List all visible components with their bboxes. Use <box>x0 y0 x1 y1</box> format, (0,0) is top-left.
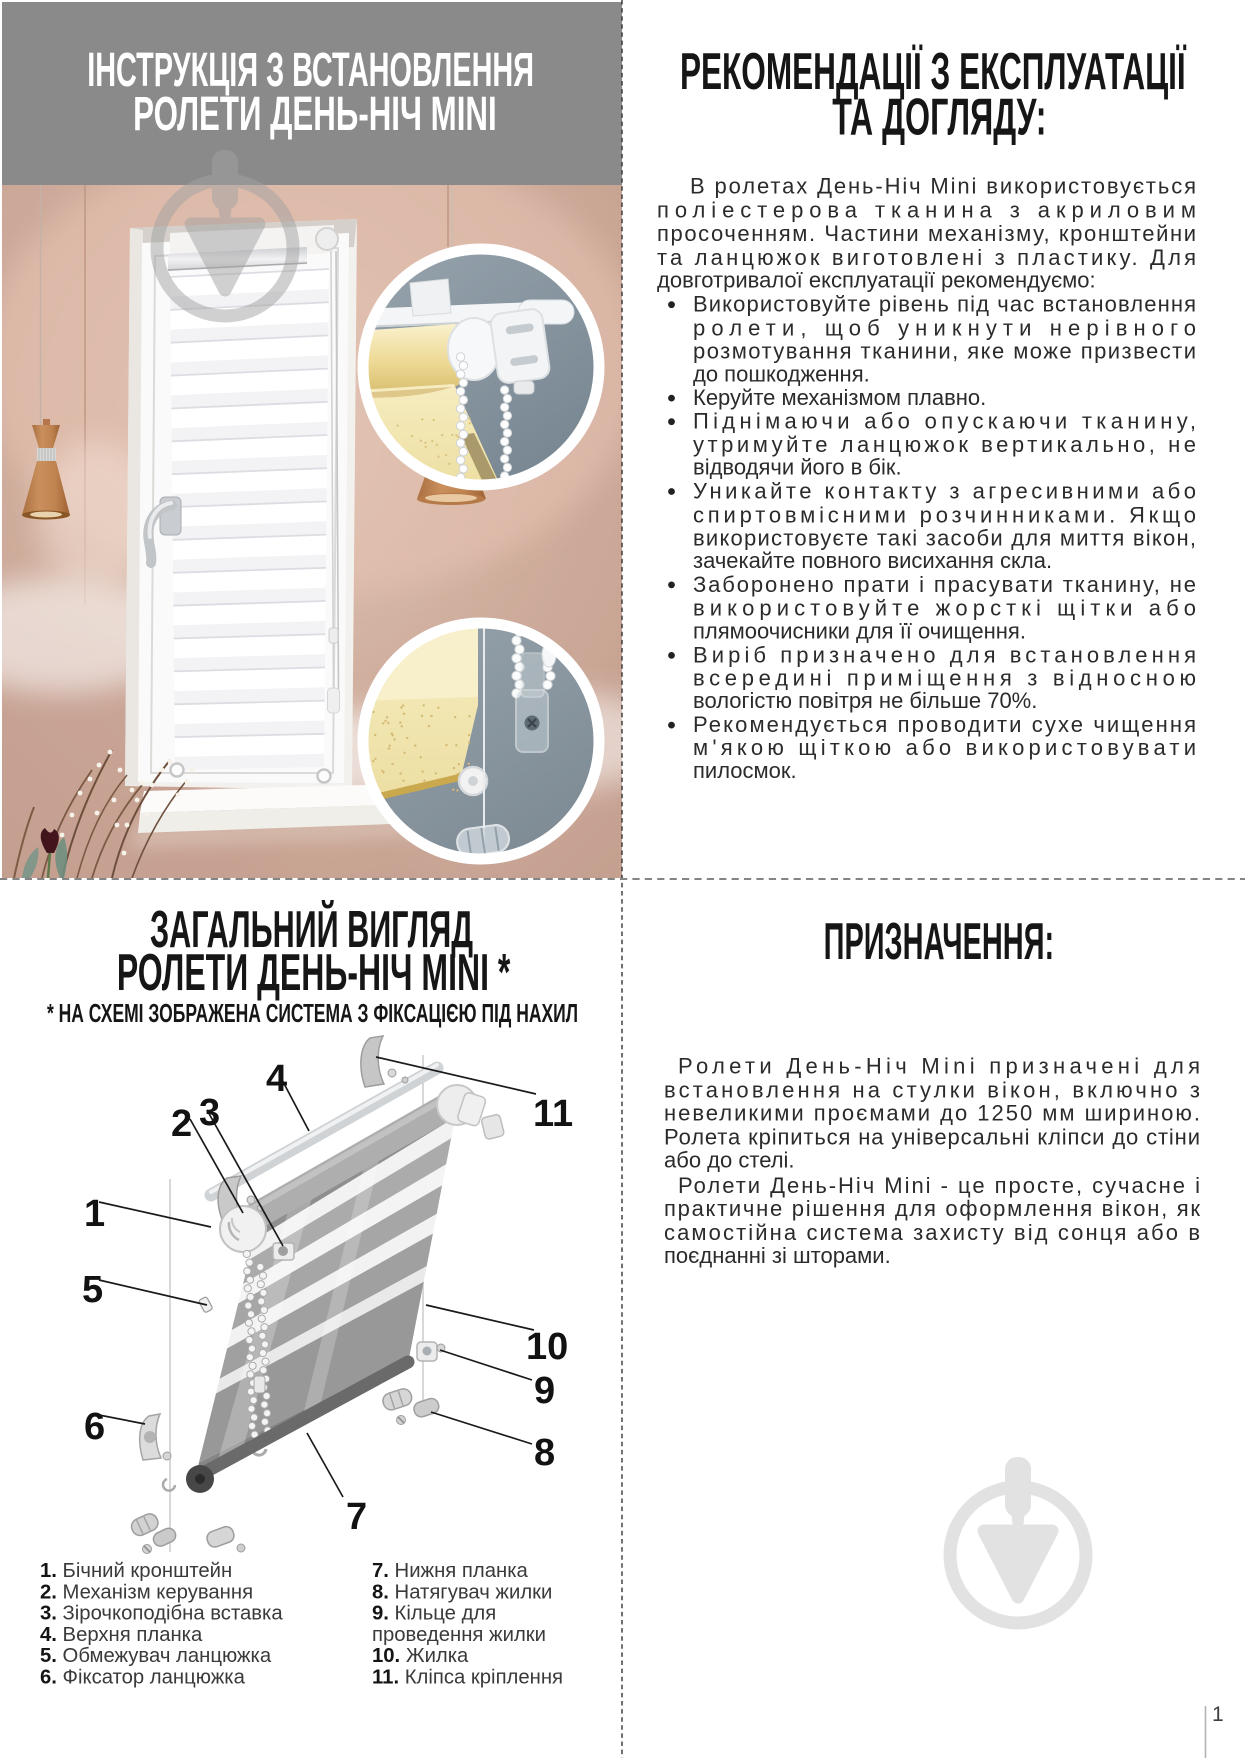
svg-text:пилосмок.: пилосмок. <box>693 758 797 783</box>
svg-text:плямоочисники для її очищення.: плямоочисники для її очищення. <box>693 618 1026 643</box>
svg-text:утримуйте ланцюжок вертикально: утримуйте ланцюжок вертикально, не <box>693 432 1196 457</box>
svg-text:Ролети День-Ніч Mini призначен: Ролети День-Ніч Mini призначені для <box>678 1053 1200 1078</box>
svg-text:2. Механізм керування: 2. Механізм керування <box>40 1581 253 1603</box>
svg-text:зачекайте повного висихання ск: зачекайте повного висихання скла. <box>693 548 1052 573</box>
svg-text:ПРИЗНАЧЕННЯ:: ПРИЗНАЧЕННЯ: <box>824 913 1055 971</box>
svg-text:поєднанні зі шторами.: поєднанні зі шторами. <box>664 1243 891 1268</box>
svg-text:3. Зірочкоподібна вставка: 3. Зірочкоподібна вставка <box>40 1603 283 1625</box>
svg-text:розмотування тканини, яке може: розмотування тканини, яке може призвести <box>693 339 1196 364</box>
svg-text:11. Кліпса кріплення: 11. Кліпса кріплення <box>372 1667 563 1689</box>
svg-text:РОЛЕТИ ДЕНЬ-НІЧ MINI *: РОЛЕТИ ДЕНЬ-НІЧ MINI * <box>117 944 511 1002</box>
svg-text:всередині приміщення з відносн: всередині приміщення з відносною <box>693 665 1196 690</box>
svg-text:Рекомендується проводити сухе: Рекомендується проводити сухе чищення <box>693 712 1196 737</box>
svg-text:Виріб призначено для встановле: Виріб призначено для встановлення <box>693 642 1196 667</box>
svg-text:просоченням. Частини механізму: просоченням. Частини механізму, кронштей… <box>657 221 1196 246</box>
svg-text:та ланцюжок виготовлені з плас: та ланцюжок виготовлені з пластику. Для <box>657 245 1196 270</box>
svg-text:РОЛЕТИ ДЕНЬ-НІЧ MINI: РОЛЕТИ ДЕНЬ-НІЧ MINI <box>133 87 497 141</box>
svg-text:вологістю повітря не більше 70: вологістю повітря не більше 70%. <box>693 688 1037 713</box>
svg-text:поліестерова тканина з акрилов: поліестерова тканина з акриловим <box>657 198 1196 223</box>
svg-text:ТА ДОГЛЯДУ:: ТА ДОГЛЯДУ: <box>832 88 1046 146</box>
svg-text:ролети, щоб уникнути нерівного: ролети, щоб уникнути нерівного <box>693 315 1196 340</box>
svg-text:4. Верхня планка: 4. Верхня планка <box>40 1624 203 1646</box>
svg-text:5. Обмежувач ланцюжка: 5. Обмежувач ланцюжка <box>40 1645 272 1667</box>
svg-text:6. Фіксатор ланцюжка: 6. Фіксатор ланцюжка <box>40 1667 246 1689</box>
svg-text:практичне рішення для оформлен: практичне рішення для оформлення вікон, … <box>664 1196 1200 1221</box>
svg-text:8. Натягувач жилки: 8. Натягувач жилки <box>372 1581 552 1603</box>
svg-text:відводячи його в бік.: відводячи його в бік. <box>693 454 902 479</box>
svg-text:* НА СХЕМІ ЗОБРАЖЕНА СИСТЕМА З: * НА СХЕМІ ЗОБРАЖЕНА СИСТЕМА З ФІКСАЦІЄЮ… <box>47 1000 578 1028</box>
svg-text:1: 1 <box>1212 1703 1224 1726</box>
svg-text:Уникайте контакту з агресивним: Уникайте контакту з агресивними або <box>693 479 1196 504</box>
svg-text:9. Кільце для: 9. Кільце для <box>372 1603 496 1625</box>
svg-text:7. Нижня планка: 7. Нижня планка <box>372 1560 529 1582</box>
svg-text:використовуйте жорсткі щітки а: використовуйте жорсткі щітки або <box>693 596 1196 621</box>
svg-text:10. Жилка: 10. Жилка <box>372 1645 469 1667</box>
svg-text:до пошкодження.: до пошкодження. <box>693 362 870 387</box>
svg-text:Використовуйте рівень під час: Використовуйте рівень під час встановлен… <box>693 292 1196 317</box>
svg-text:невеликими проємами до 1250 мм: невеликими проємами до 1250 мм шириною. <box>664 1101 1200 1126</box>
svg-text:1. Бічний кронштейн: 1. Бічний кронштейн <box>40 1560 232 1582</box>
svg-text:використовуєте такі засоби для: використовуєте такі засоби для миття вік… <box>693 525 1196 550</box>
svg-text:Заборонено прати і прасувати т: Заборонено прати і прасувати тканину, не <box>693 572 1196 597</box>
svg-text:спиртовмісними розчинниками. Я: спиртовмісними розчинниками. Якщо <box>693 503 1196 528</box>
svg-text:або до стелі.: або до стелі. <box>664 1148 795 1173</box>
svg-text:Піднімаючи або опускаючи ткани: Піднімаючи або опускаючи тканину, <box>693 409 1196 434</box>
svg-text:проведення жилки: проведення жилки <box>372 1624 546 1646</box>
svg-text:Ролета кріпиться на універсаль: Ролета кріпиться на універсальні кліпси … <box>664 1124 1200 1149</box>
svg-text:встановлення на стулки вікон,: встановлення на стулки вікон, включно з <box>664 1077 1200 1102</box>
svg-text:довготривалої експлуатації рек: довготривалої експлуатації рекомендуємо: <box>657 268 1096 293</box>
svg-text:м'якою щіткою або використовув: м'якою щіткою або використовувати <box>693 735 1196 760</box>
svg-text:Керуйте механізмом плавно.: Керуйте механізмом плавно. <box>693 385 986 410</box>
svg-text:В ролетах День-Ніч Mini викори: В ролетах День-Ніч Mini використовується <box>690 174 1196 199</box>
svg-text:Ролети День-Ніч Mini - це прос: Ролети День-Ніч Mini - це просте, сучасн… <box>678 1173 1200 1198</box>
svg-text:самостійна система захисту від: самостійна система захисту від сонця або… <box>664 1220 1200 1245</box>
